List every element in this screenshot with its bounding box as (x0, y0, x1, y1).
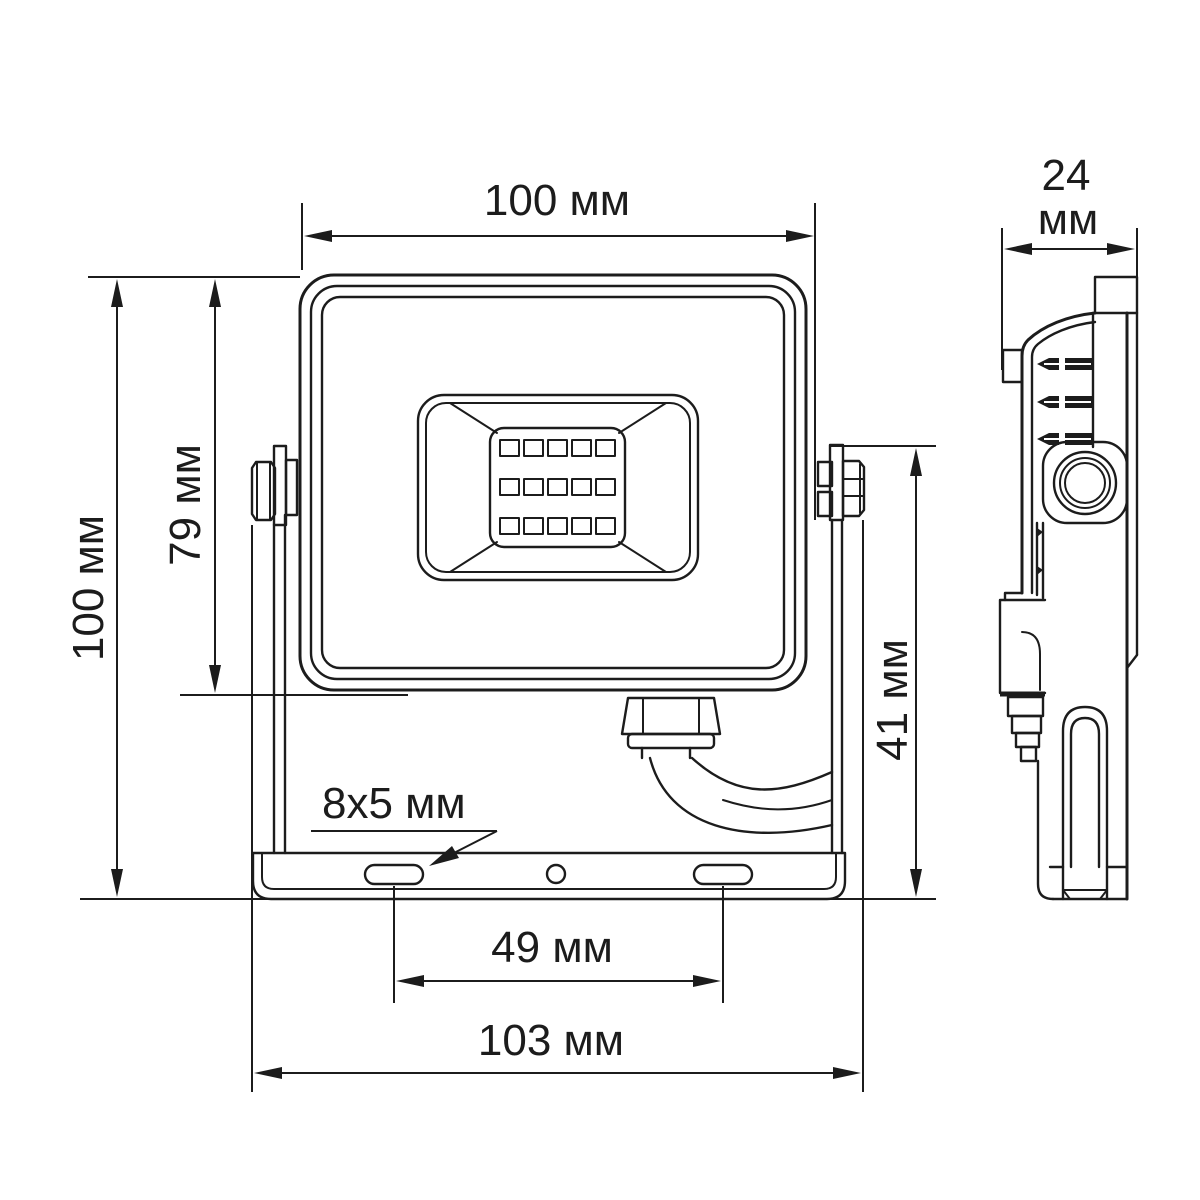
dimension-front-width: 100 мм (302, 176, 815, 520)
dimension-depth: 24 мм (1002, 151, 1137, 370)
dim-bracket-height-label: 41 мм (868, 639, 917, 761)
dim-depth-unit: мм (1038, 195, 1099, 244)
dimension-bracket-height: 41 мм (830, 446, 936, 897)
dim-slot-spacing-label: 49 мм (491, 923, 613, 972)
pivot-boss (1043, 442, 1127, 523)
dim-body-height-label: 79 мм (161, 444, 210, 566)
left-pivot-bolt (252, 446, 297, 525)
dim-overall-height-label: 100 мм (64, 515, 113, 661)
dim-slot-size-label: 8x5 мм (322, 779, 466, 828)
housing-outline-mid (311, 286, 795, 679)
cable-gland-side (1008, 697, 1043, 761)
dimension-slot-spacing: 49 мм (394, 886, 723, 1003)
cable-gland (622, 698, 720, 758)
side-view (1000, 277, 1137, 899)
mount-hole-center (547, 865, 565, 883)
right-pivot-bolt (818, 445, 864, 520)
power-cable (650, 758, 832, 833)
dim-depth-value: 24 (1042, 151, 1091, 200)
mount-slot-left (365, 865, 423, 884)
rear-fin-top (1095, 277, 1137, 313)
dim-overall-width-label: 103 мм (478, 1016, 624, 1065)
led-grid (500, 440, 615, 534)
housing-outline-inner (322, 297, 784, 668)
front-clip-bottom (1000, 593, 1045, 694)
technical-drawing: 100 мм 24 мм 100 мм 79 мм 41 мм (0, 0, 1200, 1200)
heat-fins (1037, 313, 1093, 447)
drawing-canvas: 100 мм 24 мм 100 мм 79 мм 41 мм (0, 0, 1200, 1200)
housing-outline (300, 275, 806, 690)
dim-front-width-label: 100 мм (484, 176, 630, 225)
bracket-side (1038, 707, 1127, 899)
lens-assembly (418, 395, 698, 580)
mount-slot-right (694, 865, 752, 884)
front-clip-top (1003, 350, 1022, 382)
